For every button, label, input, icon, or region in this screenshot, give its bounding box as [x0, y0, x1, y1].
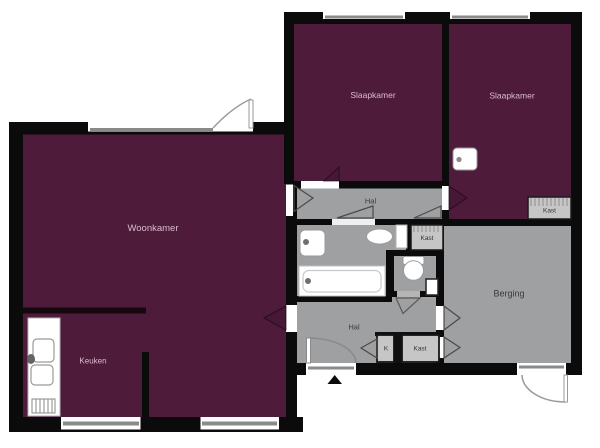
svg-text:Hal: Hal — [365, 197, 377, 206]
svg-text:Keuken: Keuken — [79, 357, 106, 366]
svg-text:Kast: Kast — [420, 235, 433, 242]
svg-text:Woonkamer: Woonkamer — [127, 223, 178, 234]
svg-text:Kast: Kast — [413, 346, 426, 353]
svg-text:Hal: Hal — [348, 323, 360, 332]
svg-text:Berging: Berging — [493, 289, 524, 299]
svg-text:Slaapkamer: Slaapkamer — [350, 90, 396, 100]
svg-text:Kast: Kast — [543, 208, 556, 215]
svg-text:K: K — [384, 346, 389, 353]
svg-text:Slaapkamer: Slaapkamer — [489, 91, 535, 101]
